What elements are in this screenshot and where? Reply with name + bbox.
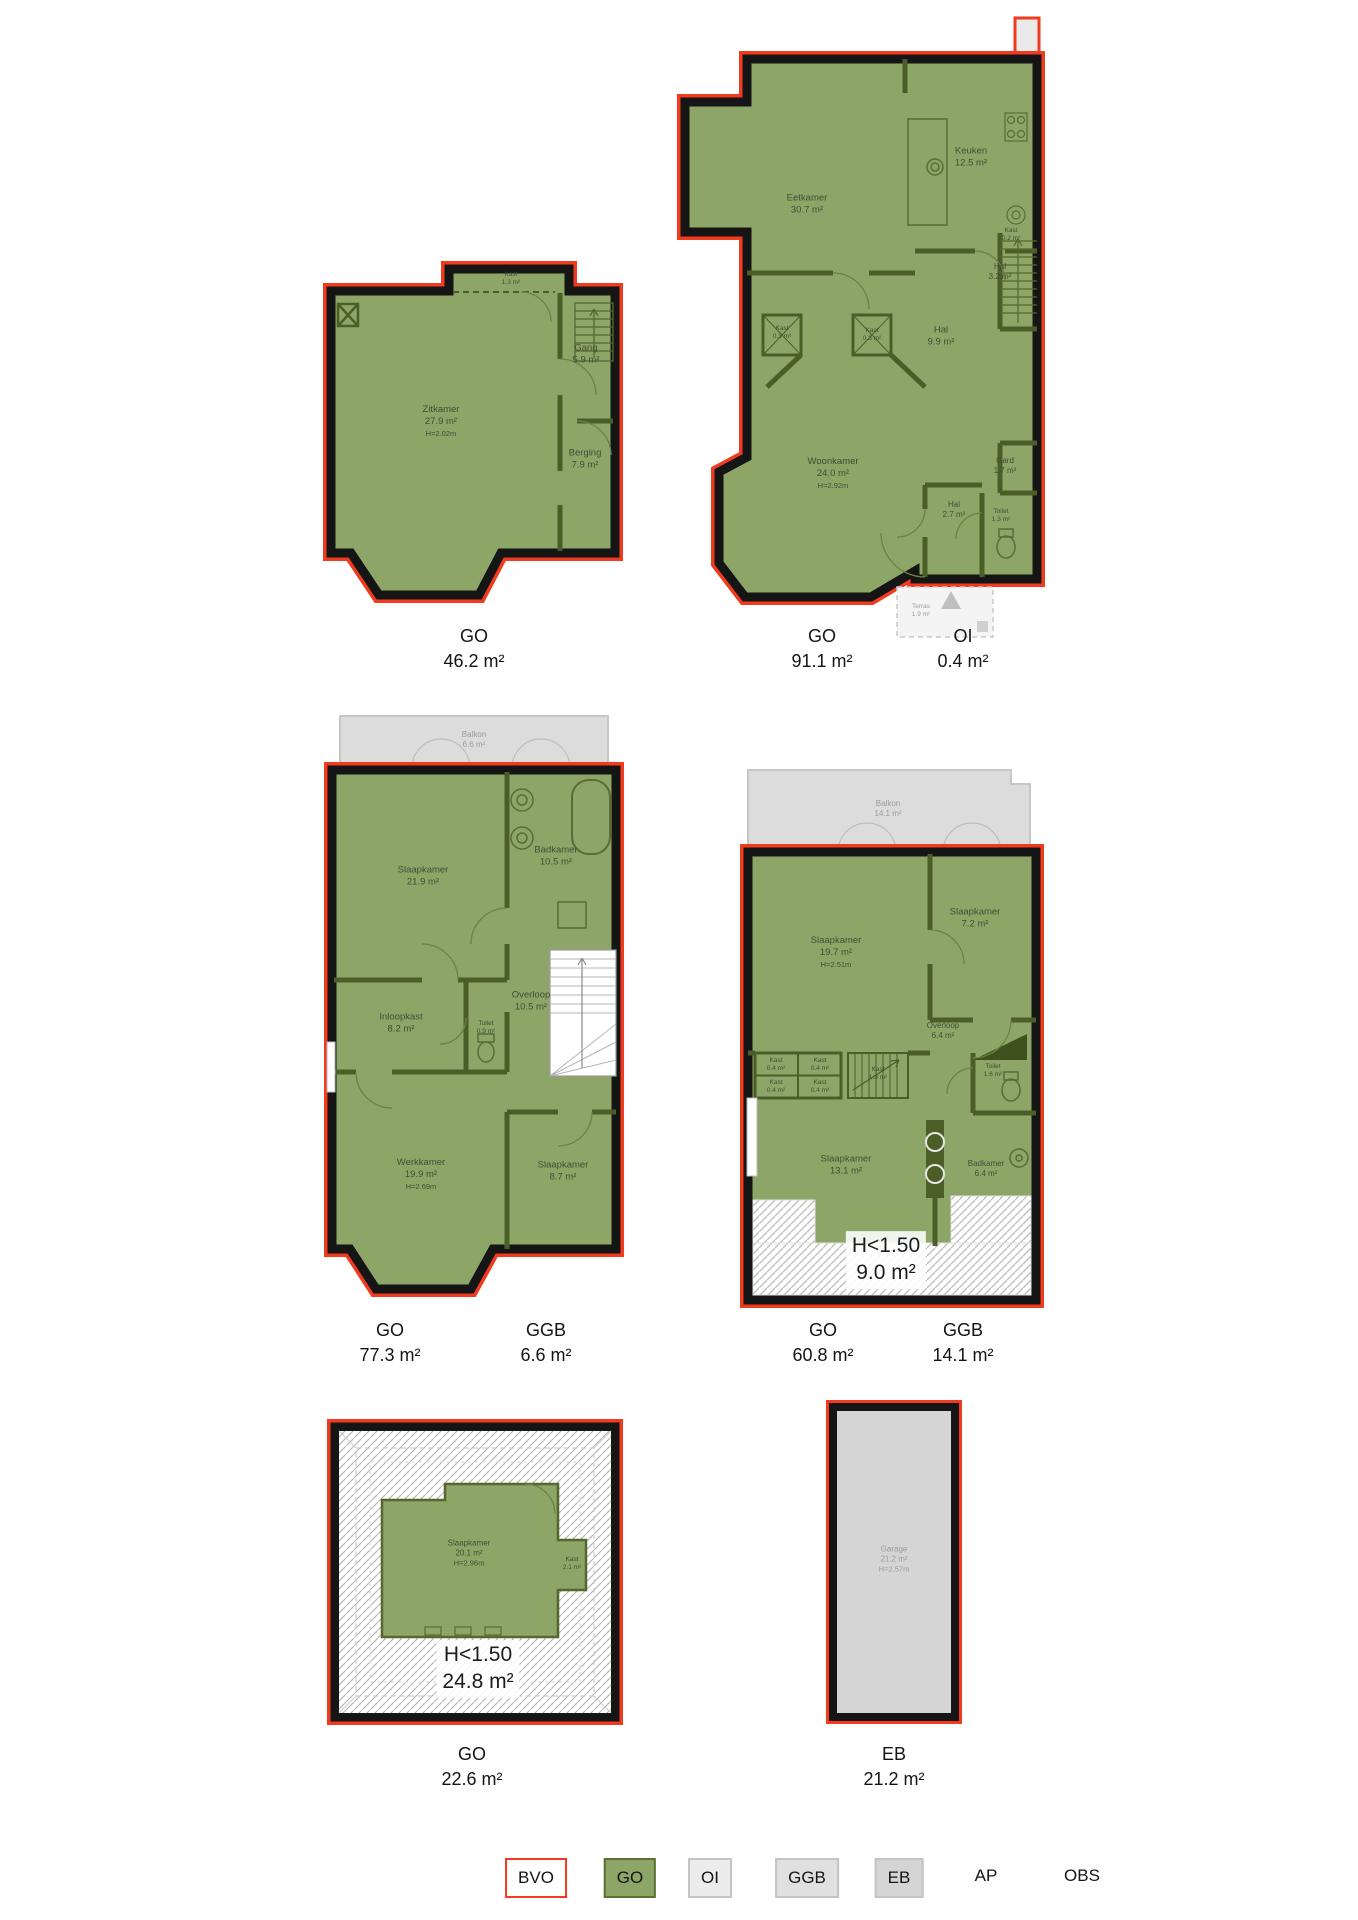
room-area: 0.4 m²	[811, 1087, 829, 1095]
room-area: 7.9 m²	[569, 460, 602, 472]
room-height: H=2.57m	[879, 1564, 910, 1573]
floor-plan-6: Garage 21.2 m² H=2.57m	[828, 1402, 960, 1722]
area-code: GO	[791, 624, 852, 649]
room-area: 1.3 m²	[992, 516, 1010, 524]
room-label-slaapkamer: Slaapkamer 20.1 m² H=2.96m	[448, 1538, 491, 1567]
room-label-terras: Terras 1.9 m²	[912, 603, 930, 619]
area-label-plan1-go: GO 46.2 m²	[443, 624, 504, 674]
room-label-slaapkamer-2: Slaapkamer 7.2 m²	[950, 907, 1001, 932]
room-name: Werkkamer	[397, 1157, 445, 1169]
room-area: 1.3 m²	[869, 1074, 887, 1082]
low-height-area: 24.8 m²	[442, 1669, 513, 1696]
room-name: Balkon	[462, 730, 486, 740]
room-height: H=2.69m	[397, 1181, 445, 1191]
room-name: Hal	[943, 500, 966, 510]
vanity-wall-sinks	[926, 1120, 944, 1198]
area-code: GO	[792, 1318, 853, 1343]
room-area: 6.4 m²	[968, 1169, 1004, 1179]
room-name: Overloop	[927, 1021, 959, 1031]
room-area: 1.7 m²	[994, 466, 1017, 476]
room-label-overloop: Overloop 6.4 m²	[927, 1021, 959, 1041]
room-name: Keuken	[955, 146, 987, 158]
floor-plan-4-drawing	[743, 768, 1041, 1308]
room-label-werkkamer: Werkkamer 19.9 m² H=2.69m	[397, 1157, 445, 1191]
room-area: 6.4 m²	[927, 1031, 959, 1041]
room-area: 10.5 m²	[512, 1002, 551, 1014]
room-area: 1.9 m²	[912, 611, 930, 619]
room-label-kast-3: Kast 0.4 m²	[767, 1079, 785, 1095]
room-name: Badkamer	[534, 845, 577, 857]
room-label-kast-links: Kast 0.3 m²	[773, 325, 791, 341]
room-area: 14.1 m²	[874, 809, 901, 819]
room-name: Kast	[1002, 227, 1020, 235]
area-value: 22.6 m²	[441, 1767, 502, 1792]
area-label-plan4-go: GO 60.8 m²	[792, 1318, 853, 1368]
room-height: H=2.92m	[807, 480, 858, 490]
room-label-kast-klein: Kast 0.2 m²	[1002, 227, 1020, 243]
room-name: Woonkamer	[807, 456, 858, 468]
room-name: Toilet	[477, 1020, 495, 1028]
low-height-label: H<1.50 9.0 m²	[846, 1231, 926, 1289]
room-label-kast-1: Kast 0.4 m²	[767, 1057, 785, 1073]
legend-item-ap: AP	[964, 1858, 1009, 1894]
room-name: Badkamer	[968, 1159, 1004, 1169]
room-label-toilet: Toilet 0.9 m²	[477, 1020, 495, 1036]
room-name: Kast	[767, 1057, 785, 1065]
room-area: 12.5 m²	[955, 158, 987, 170]
room-name: Slaapkamer	[821, 1154, 872, 1166]
room-name: Kast	[811, 1057, 829, 1065]
legend-item-ggb: GGB	[775, 1858, 839, 1898]
room-label-woonkamer: Woonkamer 24.0 m² H=2.92m	[807, 456, 858, 490]
room-area: 24.0 m²	[807, 468, 858, 480]
area-value: 77.3 m²	[359, 1343, 420, 1368]
room-label-balkon: Balkon 14.1 m²	[874, 799, 901, 819]
area-value: 60.8 m²	[792, 1343, 853, 1368]
room-name: Kast	[502, 271, 520, 279]
room-label-slaapkamer-1: Slaapkamer 19.7 m² H=2.51m	[811, 935, 862, 969]
area-label-plan5-go: GO 22.6 m²	[441, 1742, 502, 1792]
room-label-hal-midden: Hal 9.9 m²	[928, 325, 955, 350]
room-name: Toilet	[992, 508, 1010, 516]
room-area: 13.1 m²	[821, 1166, 872, 1178]
room-name: Overloop	[512, 990, 551, 1002]
room-label-balkon: Balkon 6.6 m²	[462, 730, 486, 750]
room-name: Kast	[773, 325, 791, 333]
room-label-kast: Kast 2.1 m²	[563, 1556, 581, 1572]
area-label-plan6-eb: EB 21.2 m²	[863, 1742, 924, 1792]
room-area: 21.9 m²	[398, 877, 449, 889]
room-name: Eetkamer	[787, 193, 828, 205]
room-label-kast: Kast 1.3 m²	[502, 271, 520, 287]
room-area: 8.7 m²	[538, 1172, 589, 1184]
room-area: 30.7 m²	[787, 205, 828, 217]
floor-plan-2: Eetkamer 30.7 m² Keuken 12.5 m² Kast 0.2…	[683, 15, 1043, 660]
legend-item-oi: OI	[688, 1858, 732, 1898]
area-value: 6.6 m²	[520, 1343, 571, 1368]
room-area: 0.4 m²	[767, 1065, 785, 1073]
room-area: 3.2 m²	[989, 272, 1012, 282]
area-label-plan3-ggb: GGB 6.6 m²	[520, 1318, 571, 1368]
room-name: Kast	[563, 1556, 581, 1564]
room-label-slaapkamer-1: Slaapkamer 21.9 m²	[398, 865, 449, 890]
room-height: H=2.51m	[811, 959, 862, 969]
room-area: 0.4 m²	[767, 1087, 785, 1095]
area-label-plan3-go: GO 77.3 m²	[359, 1318, 420, 1368]
room-label-toilet: Toilet 1.6 m²	[984, 1063, 1002, 1079]
room-name: Slaapkamer	[811, 935, 862, 947]
low-height-area: 9.0 m²	[852, 1260, 920, 1287]
area-value: 91.1 m²	[791, 649, 852, 674]
room-area: 0.3 m²	[773, 333, 791, 341]
room-area: 2.1 m²	[563, 1564, 581, 1572]
room-name: Inloopkast	[379, 1012, 422, 1024]
room-label-hal-onder: Hal 2.7 m²	[943, 500, 966, 520]
floorplan-sheet: Kast 1.3 m² Zitkamer 27.9 m² H=2.02m Gan…	[0, 0, 1358, 1920]
room-name: Hal	[928, 325, 955, 337]
room-name: Kast	[811, 1079, 829, 1087]
room-area: 19.7 m²	[811, 947, 862, 959]
room-area: 9.9 m²	[928, 337, 955, 349]
room-label-badkamer: Badkamer 6.4 m²	[968, 1159, 1004, 1179]
area-value: 14.1 m²	[932, 1343, 993, 1368]
room-name: Zitkamer	[423, 404, 460, 416]
room-label-slaapkamer-2: Slaapkamer 8.7 m²	[538, 1160, 589, 1185]
room-label-gang: Gang 5.9 m²	[573, 343, 600, 368]
room-area: 10.5 m²	[534, 857, 577, 869]
legend-item-eb: EB	[875, 1858, 924, 1898]
area-value: 46.2 m²	[443, 649, 504, 674]
low-height-code: H<1.50	[852, 1233, 920, 1260]
floor-plan-1-drawing	[323, 263, 623, 603]
room-name: Kast	[767, 1079, 785, 1087]
room-name: Slaapkamer	[448, 1538, 491, 1548]
room-label-toilet: Toilet 1.3 m²	[992, 508, 1010, 524]
room-area: 0.3 m²	[863, 335, 881, 343]
room-name: Gard	[994, 456, 1017, 466]
room-area: 0.2 m²	[1002, 235, 1020, 243]
room-area: 5.9 m²	[573, 355, 600, 367]
room-label-kast-4: Kast 0.4 m²	[811, 1079, 829, 1095]
room-label-zitkamer: Zitkamer 27.9 m² H=2.02m	[423, 404, 460, 438]
room-label-inloopkast: Inloopkast 8.2 m²	[379, 1012, 422, 1037]
low-height-label: H<1.50 24.8 m²	[436, 1640, 519, 1698]
stairs	[550, 950, 616, 1076]
unit-walls	[331, 269, 615, 595]
area-value: 0.4 m²	[937, 649, 988, 674]
low-height-code: H<1.50	[442, 1642, 513, 1669]
room-area: 8.2 m²	[379, 1024, 422, 1036]
room-name: Kast	[869, 1066, 887, 1074]
room-label-slaapkamer-3: Slaapkamer 13.1 m²	[821, 1154, 872, 1179]
room-label-kast-2: Kast 0.4 m²	[811, 1057, 829, 1073]
room-area: 20.1 m²	[448, 1548, 491, 1558]
room-area: 0.9 m²	[477, 1028, 495, 1036]
area-code: OI	[937, 624, 988, 649]
floor-plan-3: Balkon 6.6 m² Slaapkamer 21.9 m² Badkame…	[326, 712, 622, 1310]
floor-plan-1: Kast 1.3 m² Zitkamer 27.9 m² H=2.02m Gan…	[323, 263, 623, 603]
room-area: 7.2 m²	[950, 919, 1001, 931]
legend-item-bvo: BVO	[505, 1858, 567, 1898]
room-name: Slaapkamer	[538, 1160, 589, 1172]
room-name: Garage	[879, 1544, 910, 1554]
room-label-garage: Garage 21.2 m² H=2.57m	[879, 1544, 910, 1573]
area-code: GGB	[520, 1318, 571, 1343]
room-area: 6.6 m²	[462, 740, 486, 750]
area-code: GO	[441, 1742, 502, 1767]
room-label-kast-rechts: Kast 0.3 m²	[863, 327, 881, 343]
room-area: 2.7 m²	[943, 510, 966, 520]
room-area: 27.9 m²	[423, 416, 460, 428]
area-code: GGB	[932, 1318, 993, 1343]
room-area: 21.2 m²	[879, 1554, 910, 1564]
room-name: Terras	[912, 603, 930, 611]
room-label-badkamer: Badkamer 10.5 m²	[534, 845, 577, 870]
area-label-plan2-go: GO 91.1 m²	[791, 624, 852, 674]
area-code: EB	[863, 1742, 924, 1767]
room-height: H=2.96m	[448, 1558, 491, 1567]
room-name: Balkon	[874, 799, 901, 809]
area-label-plan4-ggb: GGB 14.1 m²	[932, 1318, 993, 1368]
room-label-kast-trap: Kast 1.3 m²	[869, 1066, 887, 1082]
floor-plan-3-drawing	[326, 712, 622, 1310]
room-height: H=2.02m	[423, 428, 460, 438]
room-name: Slaapkamer	[950, 907, 1001, 919]
room-name: Kast	[863, 327, 881, 335]
room-label-hal-boven: Hal 3.2 m²	[989, 262, 1012, 282]
room-area: 19.9 m²	[397, 1169, 445, 1181]
area-code: GO	[359, 1318, 420, 1343]
floor-plan-5: Slaapkamer 20.1 m² H=2.96m Kast 2.1 m² H…	[330, 1422, 620, 1722]
room-label-gard: Gard 1.7 m²	[994, 456, 1017, 476]
room-area: 1.3 m²	[502, 279, 520, 287]
floor-plan-4: Balkon 14.1 m² Slaapkamer 19.7 m² H=2.51…	[743, 768, 1041, 1308]
room-label-keuken: Keuken 12.5 m²	[955, 146, 987, 171]
area-label-plan2-oi: OI 0.4 m²	[937, 624, 988, 674]
window	[747, 1098, 757, 1176]
room-name: Toilet	[984, 1063, 1002, 1071]
room-label-eetkamer: Eetkamer 30.7 m²	[787, 193, 828, 218]
legend-item-obs: OBS	[1053, 1858, 1111, 1894]
area-code: GO	[443, 624, 504, 649]
room-name: Slaapkamer	[398, 865, 449, 877]
room-label-berging: Berging 7.9 m²	[569, 448, 602, 473]
area-value: 21.2 m²	[863, 1767, 924, 1792]
room-area: 0.4 m²	[811, 1065, 829, 1073]
room-label-overloop: Overloop 10.5 m²	[512, 990, 551, 1015]
room-name: Hal	[989, 262, 1012, 272]
window	[327, 1042, 335, 1092]
legend-item-go: GO	[604, 1858, 656, 1898]
room-name: Gang	[573, 343, 600, 355]
room-name: Berging	[569, 448, 602, 460]
room-area: 1.6 m²	[984, 1071, 1002, 1079]
